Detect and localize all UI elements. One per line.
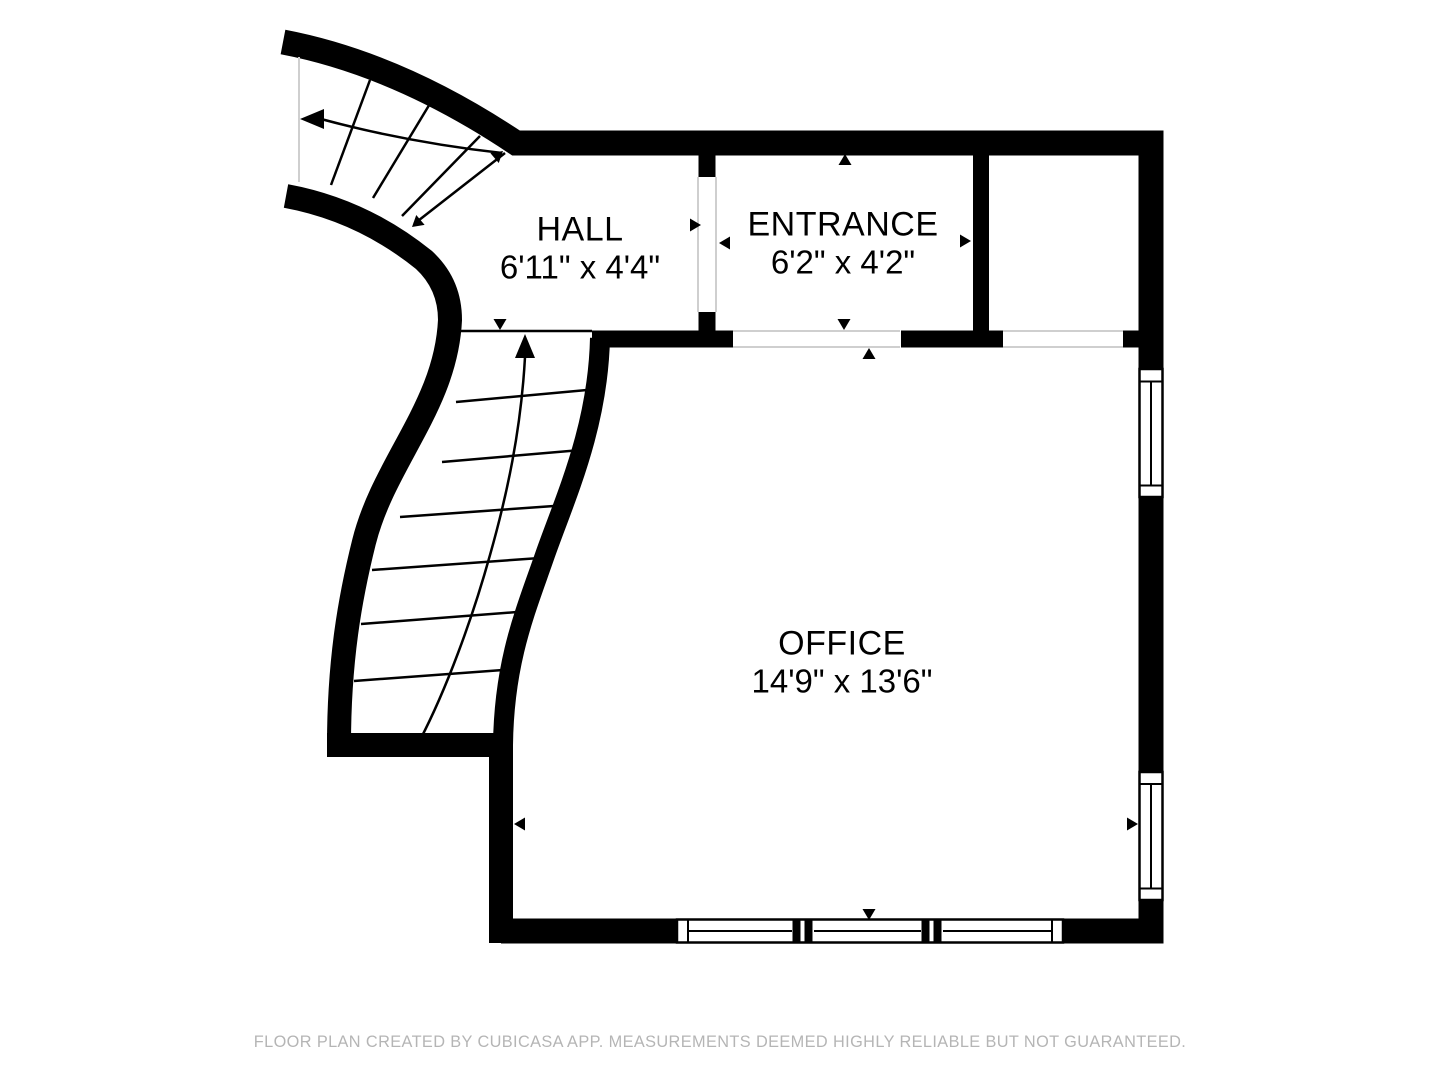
marker-hall-right [690, 219, 701, 232]
opening-closet-office [1003, 331, 1123, 347]
stair-tread [373, 102, 431, 198]
stair-office-wall [503, 338, 600, 745]
stair-outer-wall [286, 196, 450, 745]
outer-wall-office-left [327, 745, 501, 943]
stair-tread [372, 558, 540, 570]
room-name-entrance: ENTRANCE [747, 206, 938, 244]
marker-entrance-bottom [838, 319, 851, 330]
room-name-office: OFFICE [752, 625, 933, 663]
marker-entrance-left [719, 237, 730, 250]
room-dimensions-hall: 6'11" x 4'4" [500, 249, 660, 286]
marker-entrance-top [839, 154, 852, 165]
window-right-upper [1140, 369, 1164, 497]
marker-office-left [514, 818, 525, 831]
marker-office-right [1127, 818, 1138, 831]
opening-entrance-office [733, 331, 900, 347]
room-dimensions-office: 14'9" x 13'6" [752, 663, 933, 700]
window-right-lower [1140, 772, 1164, 900]
floor-plan-page: HALL 6'11" x 4'4" ENTRANCE 6'2" x 4'2" O… [0, 0, 1440, 1080]
room-label-entrance: ENTRANCE 6'2" x 4'2" [747, 206, 938, 281]
stair-tread [331, 80, 370, 185]
floor-plan-drawing [0, 0, 1440, 1080]
stairs-direction-arrow-upper [300, 109, 324, 129]
marker-office-top [863, 348, 876, 359]
stairs-direction-arrow-lower [515, 334, 535, 358]
stair-tread [361, 612, 517, 624]
room-name-hall: HALL [500, 211, 660, 249]
outer-wall-main [283, 42, 1151, 931]
marker-entrance-right [960, 235, 971, 248]
footer-disclaimer: FLOOR PLAN CREATED BY CUBICASA APP. MEAS… [29, 1032, 1411, 1052]
stair-tread [400, 505, 568, 517]
window-bottom-band [677, 920, 1063, 943]
opening-hall-entrance [698, 177, 716, 312]
room-label-hall: HALL 6'11" x 4'4" [500, 211, 660, 286]
room-dimensions-entrance: 6'2" x 4'2" [747, 244, 938, 281]
stair-tread [354, 670, 503, 681]
room-label-office: OFFICE 14'9" x 13'6" [752, 625, 933, 700]
marker-hall-bottom [494, 319, 507, 330]
